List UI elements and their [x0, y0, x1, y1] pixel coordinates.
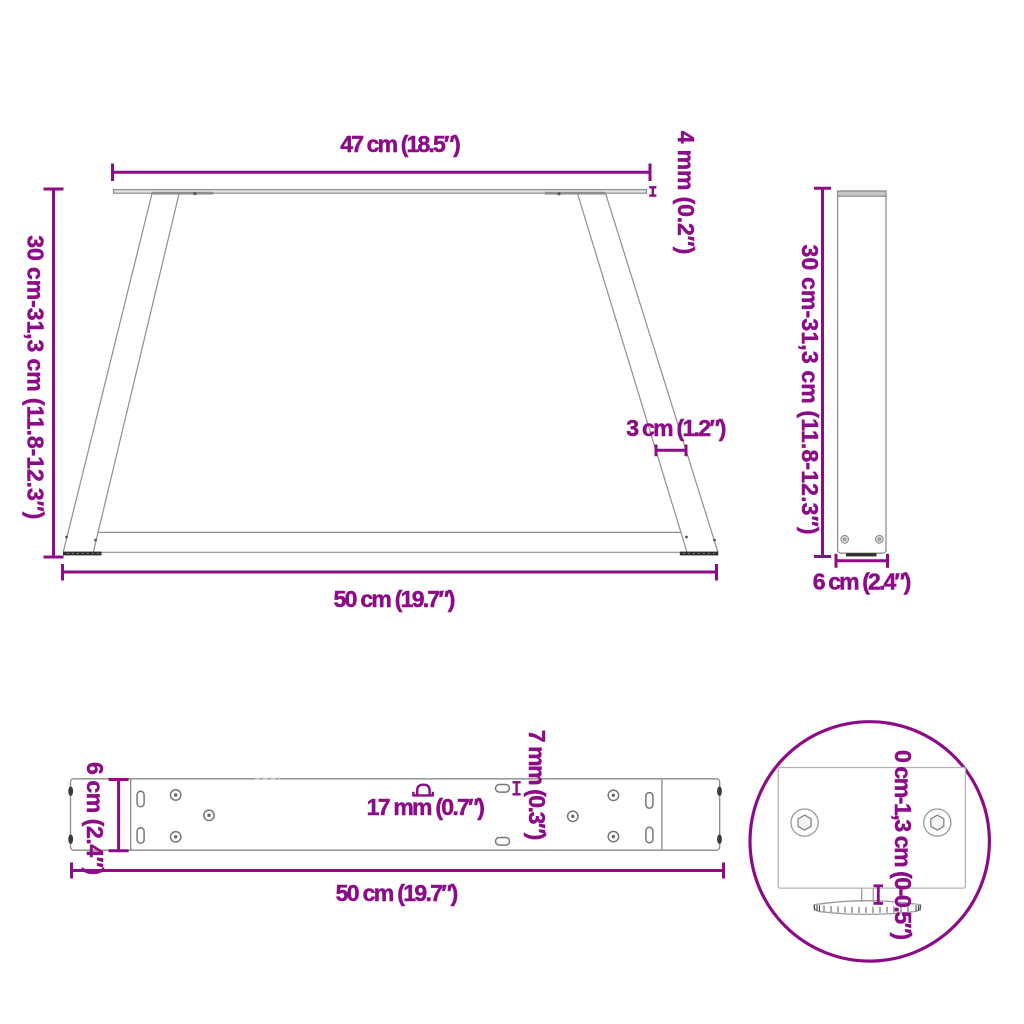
- svg-text:47 cm (18.5″): 47 cm (18.5″): [340, 131, 461, 157]
- svg-text:7 mm (0.3″): 7 mm (0.3″): [524, 730, 550, 841]
- svg-text:0 cm-1,3 cm (0-0.5″): 0 cm-1,3 cm (0-0.5″): [890, 750, 916, 940]
- svg-text:6 cm (2.4″): 6 cm (2.4″): [813, 569, 912, 595]
- svg-text:30 cm-31,3 cm (11.8-12.3″): 30 cm-31,3 cm (11.8-12.3″): [22, 235, 48, 519]
- svg-text:30 cm-31,3 cm (11.8-12.3″): 30 cm-31,3 cm (11.8-12.3″): [797, 245, 823, 535]
- svg-text:50 cm (19.7″): 50 cm (19.7″): [336, 880, 459, 906]
- svg-text:50 cm (19.7″): 50 cm (19.7″): [334, 586, 456, 612]
- svg-text:17 mm (0.7″): 17 mm (0.7″): [367, 794, 485, 820]
- svg-text:4 mm (0.2″): 4 mm (0.2″): [673, 131, 699, 255]
- svg-text:3 cm (1.2″): 3 cm (1.2″): [626, 415, 726, 441]
- svg-text:6 cm (2.4″): 6 cm (2.4″): [82, 762, 108, 875]
